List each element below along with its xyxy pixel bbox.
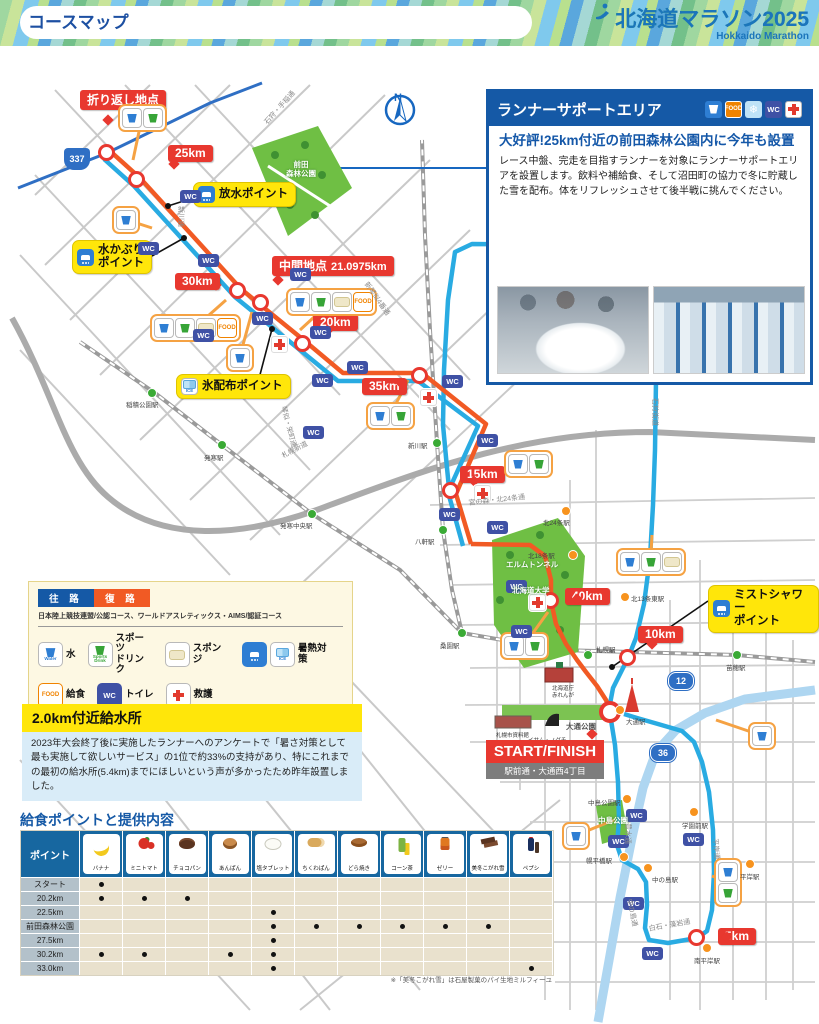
- course-point-15km: [442, 482, 459, 499]
- food-cell: [166, 934, 209, 947]
- food-cell: [338, 934, 381, 947]
- legend-item-label: スポーツ ドリンク: [116, 634, 153, 676]
- legend-item-label: 水: [66, 650, 76, 660]
- anpan-icon: [223, 838, 237, 849]
- station-label-南平岸駅: 南平岸駅: [694, 955, 720, 965]
- food-cell: [338, 948, 381, 961]
- wc-badge: WC: [138, 242, 159, 255]
- food-column-label: ゼリー: [427, 866, 463, 872]
- water-icon: [370, 406, 390, 426]
- start-finish-text: START/FINISH: [486, 740, 604, 763]
- legend-item-0: Water水: [38, 642, 76, 667]
- course-point-30km: [229, 282, 246, 299]
- food-row-label: 30.2km: [21, 948, 80, 961]
- aid-station-icons: [226, 344, 254, 372]
- food-cell: [166, 962, 209, 975]
- provided-dot: [228, 952, 233, 957]
- sports-drink-icon: [529, 454, 549, 474]
- food-table-row: 22.5km: [21, 905, 553, 919]
- wc-badge: WC: [303, 426, 324, 439]
- food-column-anpan: あんぱん: [209, 831, 252, 877]
- wc-badge: WC: [477, 434, 498, 447]
- pepsi-icon: [528, 838, 534, 851]
- food-cell: [467, 948, 510, 961]
- north-letter: N: [394, 92, 402, 104]
- food-cell: [209, 906, 252, 919]
- dorayaki-icon: [351, 838, 367, 847]
- runner-support-header: ランナーサポートエリア FOOD ❄ WC: [489, 92, 810, 126]
- food-table-footnote: ※「美冬こがれ雪」は石屋製菓のパイ生地ミルフィーユ: [300, 974, 552, 984]
- provided-dot: [529, 966, 534, 971]
- food-row-label: 22.5km: [21, 906, 80, 919]
- course-point-25km: [128, 171, 145, 188]
- runner-support-body: レース中盤、完走を目指すランナーを対象にランナーサポートエリアを設置します。飲料…: [489, 154, 810, 199]
- legend-return-badge: 復 路: [94, 589, 150, 607]
- course-map-page: コースマップ 北海道マラソン2025 Hokkaido Marathon: [0, 0, 819, 1024]
- sports-drink-icon: [311, 292, 331, 312]
- point-label-0: 放水ポイント: [193, 182, 296, 207]
- provided-dot: [142, 896, 147, 901]
- food-icon: FOOD: [217, 318, 237, 338]
- food-cell: [80, 962, 123, 975]
- food-cell: [295, 878, 338, 891]
- route-badge-12: 12: [668, 672, 694, 690]
- food-cell: [209, 934, 252, 947]
- wc-badge: WC: [347, 361, 368, 374]
- station-label-八軒駅: 八軒駅: [415, 536, 435, 546]
- station-dot-北18条駅: [568, 550, 578, 560]
- support-photo-snow-boxes: [653, 286, 805, 374]
- km-label-40km: 40km: [565, 588, 610, 605]
- food-column-label: 塩タブレット: [255, 866, 291, 872]
- food-cell: [510, 906, 553, 919]
- aid-station-icons: [504, 450, 553, 478]
- support-photos: [497, 286, 805, 374]
- food-cell: [510, 920, 553, 933]
- km-pointer: [102, 114, 113, 125]
- station-label-平岸駅: 平岸駅: [740, 871, 760, 881]
- mifuyu-icon: [481, 837, 496, 845]
- provided-dot: [271, 938, 276, 943]
- food-column-corntea: コーン茶: [381, 831, 424, 877]
- shower-icon: [713, 600, 730, 617]
- point-label-text: 氷配布ポイント: [202, 380, 283, 393]
- food-cell: [424, 920, 467, 933]
- park-label-4: 大通公園: [566, 722, 596, 731]
- jelly-icon: [441, 838, 450, 850]
- food-cell: [338, 906, 381, 919]
- course-point-midpoint: [252, 294, 269, 311]
- road-label-豊水通: 豊水通: [623, 823, 633, 844]
- point-label-3: ミストシャワー ポイント: [708, 585, 819, 633]
- midpoint-distance: 21.0975km: [331, 261, 387, 273]
- food-table: ポイントバナナミニトマトチョコパンあんぱん塩タブレットちくわぱんどら焼きコーン茶…: [20, 830, 554, 976]
- station-label-北18条駅: 北18条駅: [528, 550, 555, 560]
- sports-drink-icon: Sports Drink: [88, 642, 113, 667]
- point-label-text: 放水ポイント: [219, 188, 288, 201]
- food-column-pepsi: ペプシ: [510, 831, 553, 877]
- food-cell: [510, 892, 553, 905]
- shower-icon: [242, 642, 267, 667]
- food-cell: [209, 878, 252, 891]
- station-label-桑園駅: 桑園駅: [440, 640, 460, 650]
- wc-badge: WC: [290, 268, 311, 281]
- food-cell: [381, 892, 424, 905]
- food-cell: [295, 934, 338, 947]
- food-cell: [166, 948, 209, 961]
- provided-dot: [271, 924, 276, 929]
- food-cell: [209, 920, 252, 933]
- start-finish-location: 駅前通・大通西4丁目: [486, 763, 604, 779]
- wc-badge: WC: [487, 521, 508, 534]
- water-station-body: 2023年大会終了後に実施したランナーへのアンケートで「暑さ対策として最も実施し…: [22, 732, 362, 801]
- food-cell: [467, 906, 510, 919]
- point-label-text: ミストシャワー ポイント: [734, 589, 811, 629]
- km-label-10km: 10km: [638, 626, 683, 643]
- point-label-2: ICE氷配布ポイント: [176, 374, 291, 399]
- aid-station-icons: [748, 722, 776, 750]
- station-dot-中島公園駅: [622, 794, 632, 804]
- food-cell: [381, 878, 424, 891]
- road-label-琴似・栄町通: 琴似・栄町通: [278, 405, 299, 448]
- station-label-札幌駅: 札幌駅: [596, 644, 616, 654]
- water-station-title: 2.0km付近給水所: [22, 704, 362, 732]
- food-cell: [123, 962, 166, 975]
- food-cell: [338, 892, 381, 905]
- park-label-2: 北海道大学: [512, 586, 550, 595]
- chikuwa-icon: [308, 838, 325, 847]
- km-pointer: [272, 274, 283, 285]
- food-cell: [424, 906, 467, 919]
- banana-icon: [91, 836, 111, 858]
- food-column-label: どら焼き: [341, 866, 377, 872]
- food-cell: [252, 920, 295, 933]
- water-icon: [718, 862, 738, 882]
- food-cell: [123, 948, 166, 961]
- food-column-label: コーン茶: [384, 866, 420, 872]
- station-dot-発寒駅: [217, 440, 227, 450]
- sports-drink-icon: [718, 883, 738, 903]
- sports-drink-icon: [175, 318, 195, 338]
- food-cell: [123, 934, 166, 947]
- runner-support-box: ランナーサポートエリア FOOD ❄ WC 大好評!25km付近の前田森林公園内…: [486, 89, 813, 385]
- food-row-label: 20.2km: [21, 892, 80, 905]
- wc-badge: WC: [193, 329, 214, 342]
- food-cell: [80, 948, 123, 961]
- food-row-label: 前田森林公園: [21, 920, 80, 933]
- food-column-chikuwa: ちくわぱん: [295, 831, 338, 877]
- station-label-中島公園駅: 中島公園駅: [588, 797, 621, 807]
- station-dot-学園前駅: [689, 807, 699, 817]
- chocopan-icon: [179, 838, 195, 849]
- food-cell: [252, 934, 295, 947]
- food-cell: [295, 892, 338, 905]
- food-column-label: ミニトマト: [126, 866, 162, 872]
- food-cell: [123, 878, 166, 891]
- provided-dot: [185, 896, 190, 901]
- food-cell: [424, 892, 467, 905]
- water-icon: [230, 348, 250, 368]
- ice-icon: ICE: [270, 642, 295, 667]
- station-label-新川駅: 新川駅: [408, 440, 428, 450]
- food-column-tomato: ミニトマト: [123, 831, 166, 877]
- food-cell: [166, 906, 209, 919]
- legend-item-label: スポンジ: [193, 644, 230, 665]
- station-dot-北24条駅: [561, 506, 571, 516]
- food-cell: [467, 892, 510, 905]
- corntea-icon: [399, 838, 406, 852]
- aid-station-icons: FOOD: [286, 288, 377, 316]
- wc-badge: WC: [642, 947, 663, 960]
- route-badge-36: 36: [650, 744, 676, 762]
- wc-badge: WC: [439, 508, 460, 521]
- station-label-発寒中央駅: 発寒中央駅: [280, 520, 313, 530]
- aid-station-icons: [118, 104, 167, 132]
- food-row-label: 27.5km: [21, 934, 80, 947]
- aid-station-icons: [112, 206, 140, 234]
- support-photo-snow-pile: [497, 286, 649, 374]
- food-cell: [252, 962, 295, 975]
- legend-item-1: Sports Drinkスポーツ ドリンク: [88, 634, 153, 676]
- road-label-石狩・手稲通: 石狩・手稲通: [262, 89, 298, 127]
- station-dot-中の島駅: [643, 863, 653, 873]
- aid-station-icons: [714, 858, 742, 907]
- legend-item-label: 救護: [194, 690, 213, 700]
- snow-icon: ❄: [745, 101, 762, 118]
- start-finish-label: START/FINISH駅前通・大通西4丁目: [486, 740, 604, 779]
- water-icon: [508, 454, 528, 474]
- water-icon: [154, 318, 174, 338]
- station-dot-札幌駅: [583, 650, 593, 660]
- food-cell: [252, 892, 295, 905]
- food-cell: [424, 878, 467, 891]
- food-table-row: 前田森林公園: [21, 919, 553, 933]
- km-label-15km: 15km: [460, 466, 505, 483]
- food-column-chocopan: チョコパン: [166, 831, 209, 877]
- legend-row-1: Water水Sports Drinkスポーツ ドリンクスポンジICE暑熱対策: [38, 634, 343, 676]
- route-badge-337: 337: [64, 148, 90, 170]
- water-icon: [122, 108, 142, 128]
- tomato-icon: [139, 838, 150, 849]
- water-icon: [752, 726, 772, 746]
- food-cell: [252, 948, 295, 961]
- food-table-row: 20.2km: [21, 891, 553, 905]
- station-label-北24条駅: 北24条駅: [543, 517, 570, 527]
- course-point-折り返し地点: [98, 144, 115, 161]
- sponge-icon: [332, 292, 352, 312]
- food-column-label: 美冬こがれ雪: [470, 866, 506, 872]
- legend-box: 往 路 復 路 日本陸上競技連盟/公認コース、ワールドアスレティックス・AIMS…: [28, 581, 353, 705]
- station-dot-発寒中央駅: [307, 509, 317, 519]
- food-table-point-header: ポイント: [21, 831, 80, 877]
- station-dot-苗穂駅: [732, 650, 742, 660]
- food-column-label: チョコパン: [169, 866, 205, 872]
- station-dot-桑園駅: [457, 628, 467, 638]
- food-cell: [166, 920, 209, 933]
- food-cell: [80, 892, 123, 905]
- food-icon: FOOD: [725, 101, 742, 118]
- aid-station-icons: [616, 548, 686, 576]
- station-label-学園前駅: 学園前駅: [682, 820, 708, 830]
- food-cell: [467, 934, 510, 947]
- food-column-dorayaki: どら焼き: [338, 831, 381, 877]
- water-icon: [566, 826, 586, 846]
- food-column-banana: バナナ: [80, 831, 123, 877]
- wc-badge: WC: [310, 326, 331, 339]
- food-table-row: 30.2km: [21, 947, 553, 961]
- provided-dot: [271, 952, 276, 957]
- station-label-幌平橋駅: 幌平橋駅: [586, 855, 612, 865]
- food-cell: [338, 878, 381, 891]
- water-icon: [504, 636, 524, 656]
- station-label-苗穂駅: 苗穂駅: [726, 662, 746, 672]
- sports-drink-icon: [641, 552, 661, 572]
- station-dot-幌平橋駅: [619, 852, 629, 862]
- food-cell: [424, 934, 467, 947]
- station-label-北13条東駅: 北13条東駅: [631, 593, 664, 603]
- legend-item-label: トイレ: [125, 690, 154, 700]
- food-cell: [381, 934, 424, 947]
- food-cell: [467, 920, 510, 933]
- provided-dot: [443, 924, 448, 929]
- building-label-1: 札幌市資料館: [496, 733, 529, 740]
- provided-dot: [271, 966, 276, 971]
- sponge-icon: [662, 552, 682, 572]
- food-cell: [381, 920, 424, 933]
- station-dot-平岸駅: [745, 859, 755, 869]
- food-column-label: ペプシ: [513, 866, 549, 872]
- food-cell: [338, 920, 381, 933]
- food-cell: [209, 962, 252, 975]
- food-cell: [209, 948, 252, 961]
- provided-dot: [99, 882, 104, 887]
- food-column-jelly: ゼリー: [424, 831, 467, 877]
- legend-item-2: スポンジ: [165, 642, 230, 667]
- provided-dot: [486, 924, 491, 929]
- wc-badge: WC: [511, 625, 532, 638]
- food-cell: [295, 948, 338, 961]
- course-point-10km: [619, 649, 636, 666]
- first-aid-badge: [529, 594, 546, 611]
- road-label-白石・藻岩通: 白石・藻岩通: [648, 917, 691, 934]
- food-cell: [252, 906, 295, 919]
- food-cell: [510, 934, 553, 947]
- course-point-5km: [688, 929, 705, 946]
- provided-dot: [400, 924, 405, 929]
- park-label-1: エルムトンネル: [506, 560, 558, 569]
- water-icon: [116, 210, 136, 230]
- road-label-平岸通: 平岸通: [710, 838, 722, 860]
- provided-dot: [142, 952, 147, 957]
- legend-item-label: 給食: [66, 690, 85, 700]
- food-row-label: スタート: [21, 878, 80, 891]
- food-table-row: 27.5km: [21, 933, 553, 947]
- food-cell: [80, 878, 123, 891]
- shower-icon: [77, 249, 94, 266]
- food-column-mifuyu: 美冬こがれ雪: [467, 831, 510, 877]
- course-point-35km: [411, 367, 428, 384]
- provided-dot: [99, 952, 104, 957]
- water-station-box: 2.0km付近給水所 2023年大会終了後に実施したランナーへのアンケートで「暑…: [22, 704, 362, 801]
- food-row-label: 33.0km: [21, 962, 80, 975]
- wc-badge: WC: [252, 312, 273, 325]
- food-cell: [80, 934, 123, 947]
- building-label-0: 北海道庁 赤れんが: [552, 686, 574, 699]
- aid-station-icons: [562, 822, 590, 850]
- food-cell: [123, 920, 166, 933]
- park-label-3: 中島公園: [598, 816, 628, 825]
- station-dot-八軒駅: [438, 525, 448, 535]
- first-aid-badge: [271, 336, 288, 353]
- road-label-新川通: 新川通: [176, 206, 186, 227]
- food-cell: [123, 906, 166, 919]
- legend-item-3: ICE暑熱対策: [242, 642, 335, 667]
- ice-icon: ICE: [181, 378, 198, 395]
- station-dot-稲積公園駅: [147, 388, 157, 398]
- food-cell: [467, 878, 510, 891]
- food-cell: [80, 906, 123, 919]
- food-cell: [123, 892, 166, 905]
- food-column-salt: 塩タブレット: [252, 831, 295, 877]
- sports-drink-icon: [525, 636, 545, 656]
- provided-dot: [357, 924, 362, 929]
- wc-badge: WC: [180, 190, 201, 203]
- first-aid-icon: [785, 101, 802, 118]
- water-icon: [620, 552, 640, 572]
- sponge-icon: [165, 642, 190, 667]
- runner-support-title: ランナーサポートエリア: [497, 99, 702, 120]
- aid-station-icons: [366, 402, 415, 430]
- wc-badge: WC: [442, 375, 463, 388]
- water-icon: [705, 101, 722, 118]
- station-dot-北13条東駅: [620, 592, 630, 602]
- wc-badge: WC: [626, 809, 647, 822]
- food-cell: [510, 948, 553, 961]
- legend-item-label: 暑熱対策: [298, 644, 335, 665]
- park-label-0: 前田 森林公園: [286, 160, 316, 178]
- food-cell: [381, 948, 424, 961]
- provided-dot: [271, 910, 276, 915]
- north-label: N: [394, 88, 402, 106]
- station-dot-南平岸駅: [702, 943, 712, 953]
- water-icon: Water: [38, 642, 63, 667]
- station-label-発寒駅: 発寒駅: [204, 452, 224, 462]
- food-column-label: あんぱん: [212, 866, 248, 872]
- wc-badge: WC: [198, 254, 219, 267]
- station-dot-大通駅: [615, 705, 625, 715]
- sports-drink-icon: [391, 406, 411, 426]
- road-label-石狩街道: 石狩街道: [650, 398, 660, 426]
- wc-badge: WC: [683, 833, 704, 846]
- food-table-row: 33.0km: [21, 961, 553, 975]
- food-column-label: バナナ: [83, 866, 119, 872]
- legend-certification: 日本陸上競技連盟/公認コース、ワールドアスレティックス・AIMS/認証コース: [38, 611, 343, 627]
- salt-icon: [265, 838, 282, 850]
- food-column-label: ちくわぱん: [298, 866, 334, 872]
- food-cell: [80, 920, 123, 933]
- station-label-中の島駅: 中の島駅: [652, 874, 678, 884]
- wc-icon: WC: [765, 101, 782, 118]
- food-cell: [209, 892, 252, 905]
- food-cell: [424, 948, 467, 961]
- food-cell: [166, 878, 209, 891]
- provided-dot: [314, 924, 319, 929]
- food-cell: [295, 906, 338, 919]
- food-table-row: スタート: [21, 877, 553, 891]
- food-cell: [166, 892, 209, 905]
- runner-support-headline: 大好評!25km付近の前田森林公園内に今年も設置: [489, 126, 810, 154]
- food-table-title: 給食ポイントと提供内容: [20, 810, 174, 830]
